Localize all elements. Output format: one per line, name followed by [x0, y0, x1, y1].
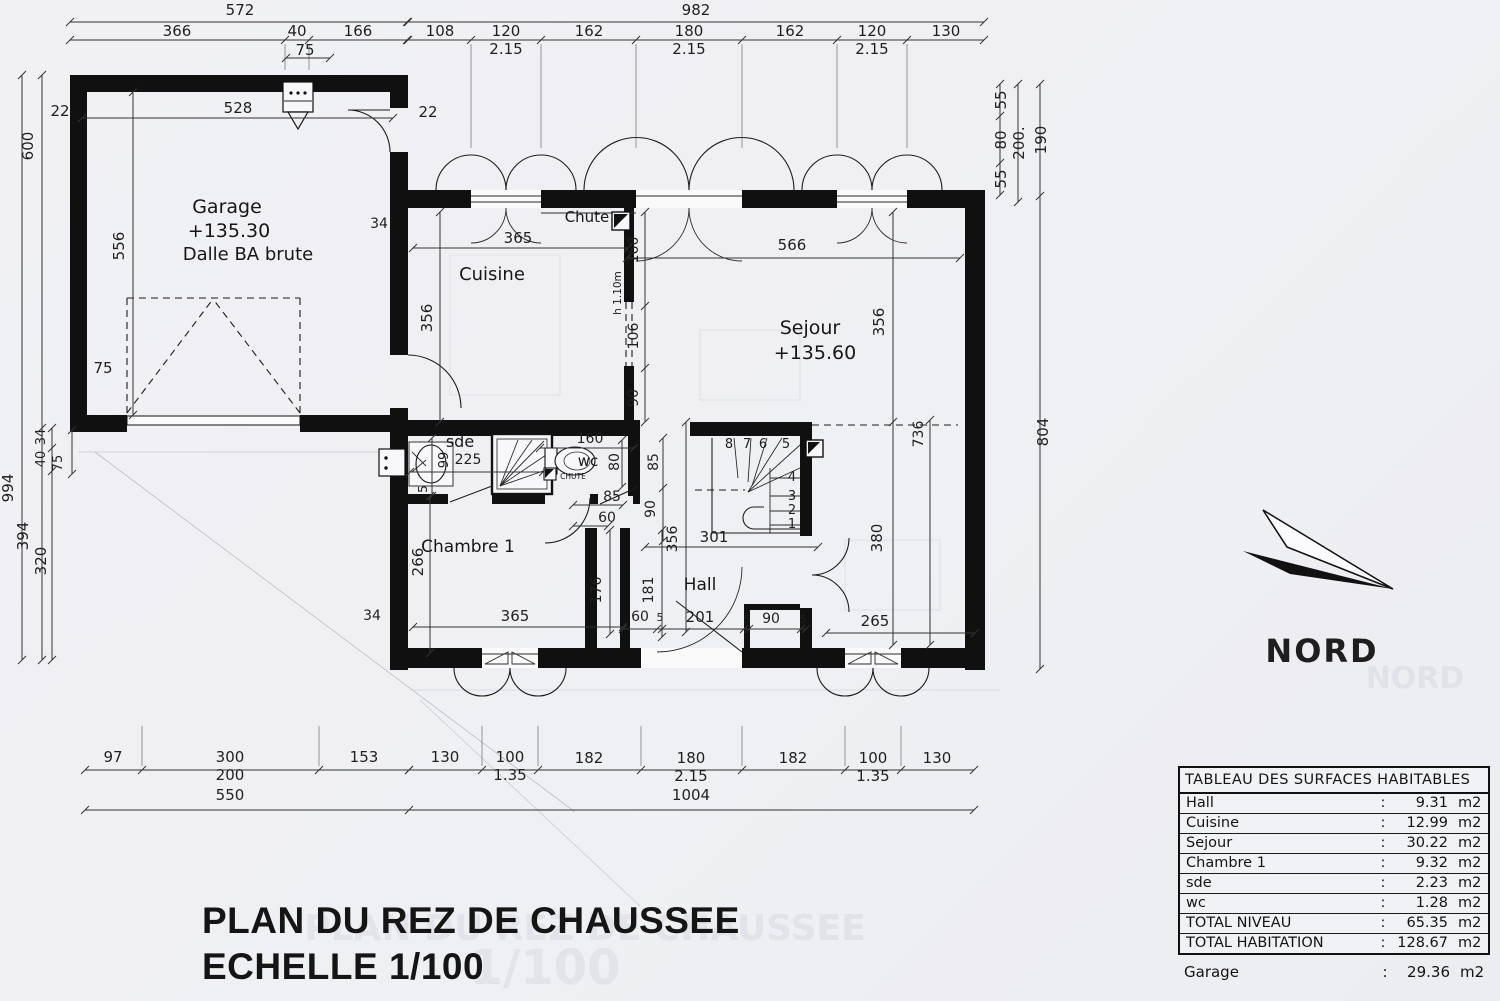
title-block: PLAN DU REZ DE CHAUSSEE ECHELLE 1/100	[202, 898, 740, 990]
counter-height-label: h 1.10m	[612, 271, 624, 315]
chambre1-label: Chambre 1	[421, 537, 515, 557]
dim-label: 7	[743, 437, 751, 452]
electric-meter-box	[379, 449, 405, 476]
table-row-total-habitation: TOTAL HABITATION:128.67m2	[1180, 934, 1488, 953]
sde-label: sde	[446, 432, 474, 451]
fixtures	[379, 212, 823, 494]
dim-label: 356	[418, 304, 436, 333]
chute-small-label: CHUTE	[560, 472, 586, 481]
dim-label: 365	[501, 607, 530, 625]
ghost-nord-text: NORD	[1366, 661, 1465, 696]
table-row-total-niveau: TOTAL NIVEAU:65.35m2	[1180, 914, 1488, 934]
dim-label: 85	[603, 489, 621, 505]
dim-label: 34	[363, 608, 381, 624]
dim-label: 80	[992, 130, 1010, 149]
dim-label: 528	[224, 99, 253, 117]
table-row-sde: sde:2.23m2	[1180, 874, 1488, 894]
dim-label: 200.	[1010, 126, 1028, 159]
staircase	[695, 438, 800, 533]
surface-table: TABLEAU DES SURFACES HABITABLES Hall:9.3…	[1178, 766, 1490, 984]
dim-label: 130	[431, 748, 460, 766]
dim-label: 75	[93, 359, 112, 377]
dim-label: 5	[782, 437, 790, 452]
dim-label: 106	[626, 323, 642, 350]
dim-label: 153	[350, 748, 379, 766]
dim-label: 97	[103, 748, 122, 766]
dim-label: 180	[677, 749, 706, 767]
dim-label: 120	[858, 22, 887, 40]
dim-label: 994	[0, 474, 17, 503]
north-label: NORD	[1265, 632, 1378, 670]
dim-label: 5	[800, 613, 807, 626]
north-arrow: NORD	[1243, 510, 1393, 670]
dim-label: 1004	[672, 786, 710, 804]
dim-label: 34	[34, 429, 49, 446]
dim-label: 556	[110, 232, 128, 261]
garage-door	[127, 298, 300, 425]
dim-label: 200	[216, 766, 245, 784]
wc-label: wc	[578, 452, 599, 470]
dim-label: 90	[643, 500, 659, 518]
table-row-hall: Hall:9.31m2	[1180, 794, 1488, 814]
garage-vent	[283, 82, 313, 129]
garage-slab-label: Dalle BA brute	[183, 244, 313, 265]
dim-label: 182	[575, 749, 604, 767]
garage-label: Garage	[192, 196, 262, 218]
dim-label: 130	[932, 22, 961, 40]
dim-label: 130	[923, 749, 952, 767]
sejour-label: Sejour	[780, 317, 841, 339]
dim-label: 190	[1032, 126, 1050, 155]
dim-label: 40	[34, 451, 49, 468]
dim-label: 1.35	[493, 766, 526, 784]
dim-label: 301	[700, 528, 729, 546]
dim-label: 162	[575, 22, 604, 40]
dim-label: 2.15	[489, 40, 522, 58]
dim-label: 380	[868, 524, 886, 553]
dim-label: 300	[216, 748, 245, 766]
dim-label: 4	[788, 470, 796, 485]
dim-label: 2.15	[672, 40, 705, 58]
dim-label: 22	[50, 102, 69, 120]
dim-label: 99	[437, 452, 452, 469]
table-row-chambre1: Chambre 1:9.32m2	[1180, 854, 1488, 874]
dim-label: 55	[992, 169, 1010, 188]
dim-label: 320	[32, 547, 50, 576]
chute-label: Chute	[565, 208, 610, 226]
dim-label: 600	[19, 132, 37, 161]
dim-label: 2.15	[855, 40, 888, 58]
dim-label: 120	[492, 22, 521, 40]
dim-label: 181	[641, 577, 657, 604]
dim-label: 176	[589, 577, 605, 604]
dim-label: 90	[626, 389, 642, 407]
dim-label: 566	[778, 236, 807, 254]
dim-label: 55	[992, 90, 1010, 109]
dim-label: 180	[675, 22, 704, 40]
dim-label: 75	[51, 455, 66, 472]
table-row-wc: wc:1.28m2	[1180, 894, 1488, 914]
chute-symbol-stairs	[806, 440, 823, 457]
dimension-labels: 572366401667522528229821081202.151621802…	[0, 1, 1052, 804]
dim-label: 550	[216, 786, 245, 804]
table-row-cuisine: Cuisine:12.99m2	[1180, 814, 1488, 834]
table-row-sejour: Sejour:30.22m2	[1180, 834, 1488, 854]
dim-label: 394	[14, 522, 32, 551]
dim-label: 40	[287, 22, 306, 40]
dim-label: 60	[598, 510, 616, 526]
garage-side-door	[348, 110, 390, 152]
surface-table-title: TABLEAU DES SURFACES HABITABLES	[1180, 768, 1488, 794]
dim-label: 365	[504, 229, 533, 247]
dim-label: 572	[226, 1, 255, 19]
walls	[70, 75, 985, 670]
dim-label: 108	[426, 22, 455, 40]
drawing-scale: ECHELLE 1/100	[202, 944, 740, 990]
dim-label: 736	[911, 421, 927, 448]
dim-label: 3	[788, 489, 796, 504]
hall-label: Hall	[684, 575, 717, 595]
dim-label: 166	[344, 22, 373, 40]
dim-label: 162	[776, 22, 805, 40]
dim-label: 2.15	[674, 767, 707, 785]
garage-level-label: +135.30	[188, 220, 270, 242]
dim-label: 100	[496, 748, 525, 766]
dim-label: 1.35	[856, 767, 889, 785]
table-row-garage: Garage:29.36m2	[1178, 960, 1490, 984]
dim-label: 804	[1034, 418, 1052, 447]
openings	[127, 82, 958, 696]
dim-label: 8	[725, 437, 733, 452]
dim-label: 90	[762, 611, 780, 627]
dim-label: 356	[665, 526, 681, 553]
dim-label: 5	[657, 611, 664, 624]
dim-label: 182	[779, 749, 808, 767]
floor-plan-scan: NORD 1/100 PLAN DU REZ DE CHAUSSEE	[0, 0, 1500, 1001]
dim-label: 5	[744, 613, 751, 626]
garage-to-cuisine-door	[408, 355, 461, 408]
dim-label: 160	[577, 431, 604, 447]
surface-table-box: TABLEAU DES SURFACES HABITABLES Hall:9.3…	[1178, 766, 1490, 955]
dim-label: 6	[759, 437, 767, 452]
dim-label: 265	[861, 612, 890, 630]
dim-label: 160	[626, 237, 642, 264]
dim-label: 75	[295, 41, 314, 59]
dim-label: 34	[370, 216, 388, 232]
dim-label: 982	[682, 1, 711, 19]
dim-label: 22	[418, 103, 437, 121]
cuisine-label: Cuisine	[459, 264, 525, 285]
dim-label: 85	[646, 453, 662, 471]
dim-label: 2	[788, 503, 796, 518]
dim-label: 100	[859, 749, 888, 767]
sejour-level-label: +135.60	[774, 342, 856, 364]
dim-label: 80	[607, 453, 623, 471]
shower	[492, 434, 552, 494]
dim-label: 60	[631, 609, 649, 625]
dim-label: 1	[788, 517, 796, 532]
dim-label: 225	[455, 452, 482, 468]
dim-label: 366	[163, 22, 192, 40]
chute-symbol-top	[612, 212, 630, 230]
dim-label: 356	[870, 308, 888, 337]
drawing-title: PLAN DU REZ DE CHAUSSEE	[202, 898, 740, 944]
dim-label: 5	[416, 485, 430, 493]
dim-label: 201	[686, 608, 715, 626]
